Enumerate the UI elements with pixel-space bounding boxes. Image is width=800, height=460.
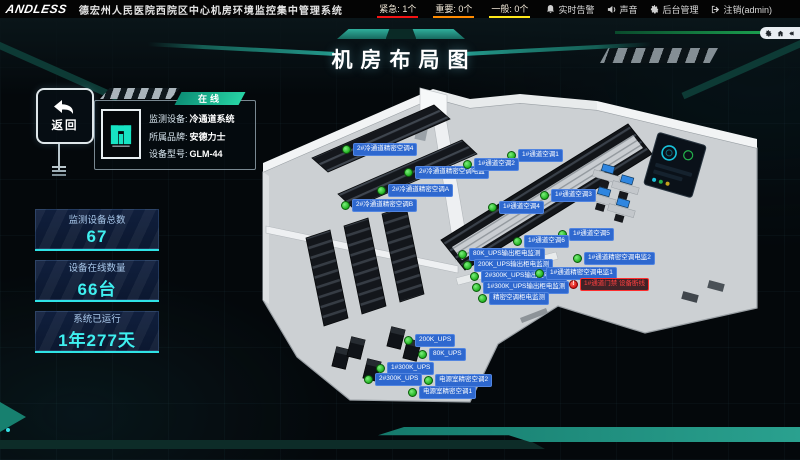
stat-label: 监测设备总数 bbox=[68, 212, 125, 226]
admin-button[interactable]: 后台管理 bbox=[650, 3, 698, 16]
topbar-buttons: 实时告警 声音 后台管理 注销(admin) bbox=[546, 3, 772, 16]
online-status-badge: 在线 bbox=[175, 92, 246, 105]
online-dot-icon bbox=[472, 283, 481, 292]
device-label[interactable]: 电源室精密空调1 bbox=[408, 386, 476, 399]
device-label-text: 1#通道空调2 bbox=[474, 158, 519, 171]
device-label-text: 电源室精密空调2 bbox=[435, 374, 492, 387]
system-title: 德宏州人民医院西院区中心机房环境监控集中管理系统 bbox=[79, 2, 343, 17]
alarm-summary: 紧急: 1个 重要: 0个 一般: 0个 bbox=[377, 0, 530, 18]
alarm-critical[interactable]: 紧急: 1个 bbox=[377, 0, 418, 18]
device-label[interactable]: 80K_UPS bbox=[418, 348, 466, 361]
stat-label: 系统已运行 bbox=[73, 311, 121, 325]
online-dot-icon bbox=[424, 376, 433, 385]
device-label[interactable]: 2#冷通道精密空调A bbox=[377, 184, 453, 197]
page-title: 机房布局图 bbox=[324, 44, 477, 74]
alarm-dot-icon: ! bbox=[569, 280, 578, 289]
online-dot-icon bbox=[540, 191, 549, 200]
device-label[interactable]: 1#通道空调6 bbox=[513, 235, 569, 248]
device-label[interactable]: 2#冷通道精密空调4 bbox=[342, 143, 417, 156]
back-button-label: 返回 bbox=[52, 117, 79, 133]
online-dot-icon bbox=[364, 375, 373, 384]
alarm-minor[interactable]: 一般: 0个 bbox=[489, 0, 530, 18]
mini-toolbar bbox=[760, 27, 800, 39]
stat-uptime: 系统已运行 1年277天 bbox=[35, 311, 159, 353]
device-label-text: 2#300K_UPS bbox=[375, 373, 422, 386]
online-dot-icon bbox=[418, 350, 427, 359]
stat-value: 66台 bbox=[78, 275, 117, 300]
stat-value: 67 bbox=[87, 227, 108, 247]
device-label[interactable]: 2#冷通道精密空调B bbox=[341, 199, 417, 212]
device-field-brand: 所属品牌:安德力士 bbox=[149, 130, 235, 143]
online-dot-icon bbox=[404, 336, 413, 345]
device-label-text: 80K_UPS bbox=[429, 348, 466, 361]
online-dot-icon bbox=[376, 364, 385, 373]
top-bar: ANDLESS 德宏州人民医院西院区中心机房环境监控集中管理系统 紧急: 1个 … bbox=[0, 0, 800, 18]
device-info-card: 监测设备:冷通道系统 所属品牌:安德力士 设备型号:GLM-44 bbox=[94, 100, 256, 170]
device-field-name: 监测设备:冷通道系统 bbox=[149, 112, 235, 125]
online-dot-icon bbox=[478, 294, 487, 303]
online-dot-icon bbox=[470, 272, 479, 281]
stat-label: 设备在线数量 bbox=[68, 260, 125, 274]
device-label-text: 2#冷通道精密空调A bbox=[388, 184, 453, 197]
gear-icon bbox=[650, 5, 659, 14]
device-label-text: 200K_UPS bbox=[415, 334, 455, 347]
back-arrow-icon bbox=[54, 100, 76, 115]
gear-icon[interactable] bbox=[765, 30, 772, 37]
device-label[interactable]: 1#通道空调2 bbox=[463, 158, 519, 171]
bell-icon bbox=[546, 5, 555, 14]
online-dot-icon bbox=[573, 254, 582, 263]
online-dot-icon bbox=[463, 261, 472, 270]
device-label[interactable]: 200K_UPS bbox=[404, 334, 455, 347]
device-label[interactable]: 1#通道空调4 bbox=[488, 201, 544, 214]
brand-logo: ANDLESS bbox=[5, 2, 68, 16]
panel-connector bbox=[58, 142, 60, 172]
online-dot-icon bbox=[463, 160, 472, 169]
home-icon[interactable] bbox=[777, 30, 784, 37]
back-button[interactable]: 返回 bbox=[36, 88, 94, 144]
device-label[interactable]: 精密空调柜电监测 bbox=[478, 292, 549, 305]
cold-aisle-device-icon bbox=[108, 121, 134, 147]
online-dot-icon bbox=[377, 186, 386, 195]
online-dot-icon bbox=[341, 201, 350, 210]
title-ornament-top bbox=[337, 29, 465, 39]
stat-total-devices: 监测设备总数 67 bbox=[35, 209, 159, 251]
device-label-text: 1#通道空调5 bbox=[569, 228, 614, 241]
speaker-icon bbox=[607, 5, 616, 14]
online-dot-icon bbox=[513, 237, 522, 246]
footer-band-dark bbox=[0, 440, 545, 449]
device-label-text: 电源室精密空调1 bbox=[419, 386, 476, 399]
back-arrows-icon[interactable] bbox=[788, 30, 795, 37]
device-fields: 监测设备:冷通道系统 所属品牌:安德力士 设备型号:GLM-44 bbox=[149, 109, 235, 163]
online-dot-icon bbox=[458, 250, 467, 259]
online-dot-icon bbox=[488, 203, 497, 212]
device-label[interactable]: 1#通道精密空调电监2 bbox=[573, 252, 655, 265]
device-field-model: 设备型号:GLM-44 bbox=[149, 147, 235, 160]
stat-online-devices: 设备在线数量 66台 bbox=[35, 260, 159, 302]
online-dot-icon bbox=[408, 388, 417, 397]
device-label-text: 精密空调柜电监测 bbox=[489, 292, 549, 305]
device-label[interactable]: 电源室精密空调2 bbox=[424, 374, 492, 387]
device-label-text: 1#通道空调3 bbox=[551, 189, 596, 202]
logout-icon bbox=[711, 5, 720, 14]
logout-button[interactable]: 注销(admin) bbox=[711, 3, 772, 16]
device-label[interactable]: 1#通道空调3 bbox=[540, 189, 596, 202]
device-label-text: 1#通道空调1 bbox=[518, 149, 563, 162]
footer-dot bbox=[6, 428, 10, 432]
panel-hatch-stripes bbox=[100, 88, 180, 99]
stat-value: 1年277天 bbox=[58, 326, 136, 351]
device-label[interactable]: 2#300K_UPS bbox=[364, 373, 422, 386]
alarm-major[interactable]: 重要: 0个 bbox=[433, 0, 474, 18]
device-label-text: 1#通道门禁 设备断线 bbox=[580, 278, 649, 291]
online-dot-icon bbox=[342, 145, 351, 154]
device-icon-box bbox=[101, 109, 141, 159]
device-label-text: 1#通道空调6 bbox=[524, 235, 569, 248]
online-dot-icon bbox=[404, 168, 413, 177]
realtime-alarm-button[interactable]: 实时告警 bbox=[546, 3, 594, 16]
device-label-text: 1#通道空调4 bbox=[499, 201, 544, 214]
device-label-text: 2#冷通道精密空调4 bbox=[353, 143, 417, 156]
sound-button[interactable]: 声音 bbox=[607, 3, 637, 16]
device-label-text: 2#冷通道精密空调B bbox=[352, 199, 417, 212]
alarm-device-label[interactable]: !1#通道门禁 设备断线 bbox=[569, 278, 649, 291]
device-label-text: 1#通道精密空调电监2 bbox=[584, 252, 655, 265]
online-dot-icon bbox=[535, 269, 544, 278]
